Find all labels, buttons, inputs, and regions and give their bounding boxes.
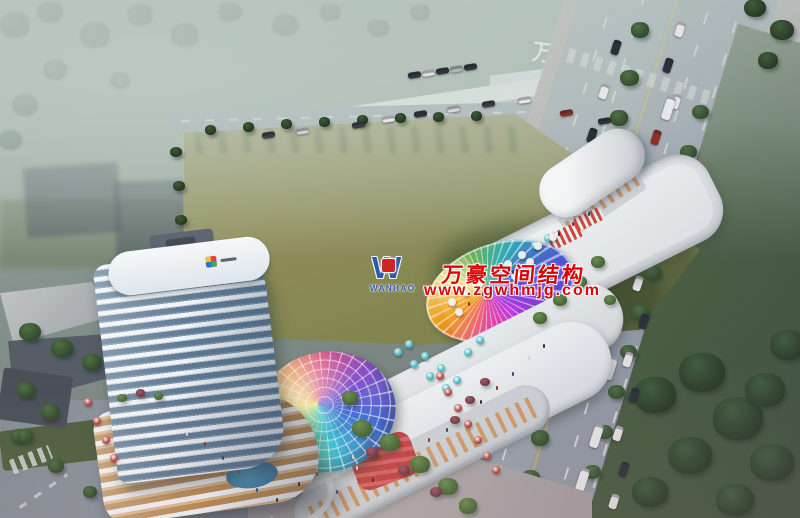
lane-line <box>19 473 68 509</box>
tree <box>0 130 22 150</box>
background-building <box>23 162 123 238</box>
tree <box>37 1 63 23</box>
tree <box>218 2 242 22</box>
tree-shadows <box>196 126 531 153</box>
tower-brand-logo-icon <box>205 256 217 268</box>
tree <box>0 12 30 38</box>
wanhao-logo-badge-icon <box>381 258 396 273</box>
industrial-shed <box>0 367 73 428</box>
tree <box>110 72 130 89</box>
wanhao-logo-name: WANHAO <box>370 284 415 293</box>
tree <box>367 19 389 38</box>
tree <box>272 14 298 36</box>
tree <box>12 94 38 116</box>
tree <box>127 4 153 26</box>
tree <box>410 4 430 21</box>
tree <box>43 60 67 80</box>
watermark-website: www.zgwhmjg.com <box>424 282 601 300</box>
tower-brand-text <box>220 257 236 262</box>
tree <box>171 23 199 47</box>
tree <box>319 3 341 22</box>
aerial-rendering-scene: 万达广场 <box>0 0 800 518</box>
tree <box>80 22 110 48</box>
umbrella <box>394 348 402 356</box>
watermark: W WANHAO 万豪空间结构 www.zgwhmjg.com <box>372 252 632 310</box>
